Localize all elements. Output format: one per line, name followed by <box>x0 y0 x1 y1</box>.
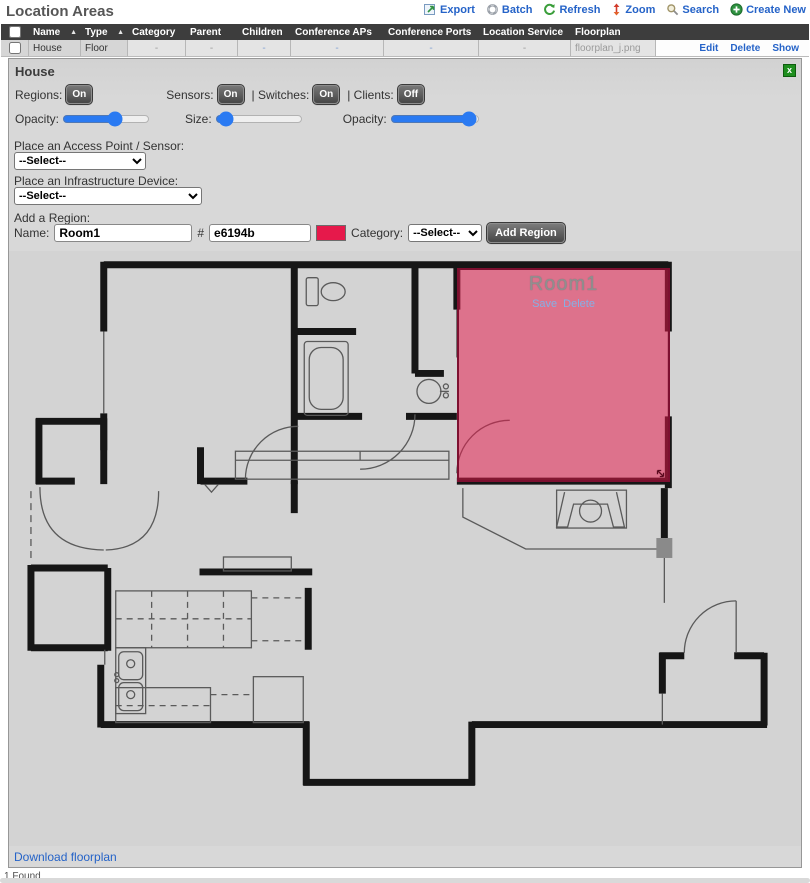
regions-opacity-slider[interactable] <box>62 112 150 126</box>
row-parent: - <box>186 40 238 56</box>
column-header-conference-ports[interactable]: Conference Ports <box>384 24 479 40</box>
page-title: Location Areas <box>6 3 114 20</box>
row-floorplan: floorplan_j.png <box>571 40 656 56</box>
edit-link[interactable]: Edit <box>699 43 718 54</box>
clients-opacity-slider[interactable] <box>390 112 480 126</box>
row-category: - <box>128 40 186 56</box>
region-category-label: Category: <box>351 226 403 240</box>
show-link[interactable]: Show <box>772 43 799 54</box>
size-label: Size: <box>185 112 212 126</box>
bottom-divider <box>0 878 810 883</box>
export-icon <box>424 3 437 16</box>
row-conference-ports: - <box>384 40 479 56</box>
clients-toggle-button[interactable]: Off <box>398 85 424 104</box>
switches-label: | Switches: <box>252 88 310 102</box>
column-header-type[interactable]: Type▲ <box>81 24 128 40</box>
create-new-icon <box>730 3 743 16</box>
clients-opacity-label: Opacity: <box>343 112 387 126</box>
top-bar: Location Areas Export Batch Refresh Zoom… <box>0 0 810 24</box>
regions-opacity-label: Opacity: <box>15 112 59 126</box>
region-color-input[interactable] <box>209 224 311 242</box>
table-header-row: Name▲ Type▲ Category Parent Children Con… <box>1 24 809 40</box>
clients-label: | Clients: <box>347 88 393 102</box>
place-ap-select[interactable]: --Select-- <box>14 152 146 170</box>
zoom-icon <box>611 3 622 16</box>
select-all-checkbox[interactable] <box>9 26 21 38</box>
place-infra-label: Place an Infrastructure Device: <box>14 174 178 188</box>
toolbar: Export Batch Refresh Zoom Search Create … <box>424 3 806 16</box>
download-floorplan-link[interactable]: Download floorplan <box>14 850 117 864</box>
sensors-label: Sensors: <box>166 88 213 102</box>
row-children: - <box>238 40 291 56</box>
switches-toggle-button[interactable]: On <box>313 85 339 104</box>
slider-controls: Opacity: Size: Opacity: <box>15 112 480 126</box>
batch-button[interactable]: Batch <box>486 3 533 16</box>
floorplan-canvas[interactable]: Room1 SaveDelete <box>9 251 801 846</box>
column-header-floorplan[interactable]: Floorplan <box>571 24 656 40</box>
hash-label: # <box>197 226 204 240</box>
layer-toggles: Regions: On Sensors: On | Switches: On |… <box>15 85 424 104</box>
floorplan-drawing <box>9 251 801 846</box>
place-infra-select[interactable]: --Select-- <box>14 187 202 205</box>
row-type: Floor <box>81 40 128 56</box>
location-areas-table: Name▲ Type▲ Category Parent Children Con… <box>1 24 809 57</box>
column-header-category[interactable]: Category <box>128 24 186 40</box>
zoom-button[interactable]: Zoom <box>611 3 655 16</box>
refresh-button[interactable]: Refresh <box>543 3 600 16</box>
region-overlay-room1[interactable]: Room1 SaveDelete <box>457 268 670 482</box>
sensors-toggle-button[interactable]: On <box>218 85 244 104</box>
column-header-location-service[interactable]: Location Service <box>479 24 571 40</box>
table-row: House Floor - - - - - - floorplan_j.png … <box>1 40 809 57</box>
sort-asc-icon[interactable]: ▲ <box>117 29 124 36</box>
location-areas-page: Location Areas Export Batch Refresh Zoom… <box>0 0 810 883</box>
close-panel-button[interactable]: x <box>783 64 796 77</box>
search-icon <box>666 3 679 16</box>
row-checkbox[interactable] <box>9 42 21 54</box>
create-new-button[interactable]: Create New <box>730 3 806 16</box>
region-name-input[interactable] <box>54 224 192 242</box>
region-category-select[interactable]: --Select-- <box>408 224 482 242</box>
refresh-icon <box>543 3 556 16</box>
size-slider[interactable] <box>215 112 303 126</box>
house-floorplan-panel: House x Regions: On Sensors: On | Switch… <box>8 58 802 868</box>
column-header-children[interactable]: Children <box>238 24 291 40</box>
column-header-name[interactable]: Name▲ <box>29 24 81 40</box>
regions-toggle-button[interactable]: On <box>66 85 92 104</box>
sort-asc-icon[interactable]: ▲ <box>70 29 77 36</box>
row-name: House <box>29 40 81 56</box>
regions-label: Regions: <box>15 88 62 102</box>
row-conference-aps: - <box>291 40 384 56</box>
region-save-link[interactable]: Save <box>532 298 557 310</box>
column-header-conference-aps[interactable]: Conference APs <box>291 24 384 40</box>
search-button[interactable]: Search <box>666 3 719 16</box>
fireplace-block <box>656 538 672 558</box>
delete-link[interactable]: Delete <box>730 43 760 54</box>
region-resize-icon[interactable] <box>655 468 666 479</box>
batch-icon <box>486 3 499 16</box>
add-region-button[interactable]: Add Region <box>487 223 565 243</box>
column-header-parent[interactable]: Parent <box>186 24 238 40</box>
region-name-label: Name: <box>14 226 49 240</box>
add-region-form: Name: # Category: --Select-- Add Region <box>14 223 565 243</box>
place-ap-label: Place an Access Point / Sensor: <box>14 139 184 153</box>
row-location-service: - <box>479 40 571 56</box>
export-button[interactable]: Export <box>424 3 475 16</box>
panel-title: House <box>15 64 55 79</box>
region-color-swatch[interactable] <box>316 225 346 241</box>
region-label: Room1 <box>459 273 668 296</box>
region-delete-link[interactable]: Delete <box>563 298 595 310</box>
